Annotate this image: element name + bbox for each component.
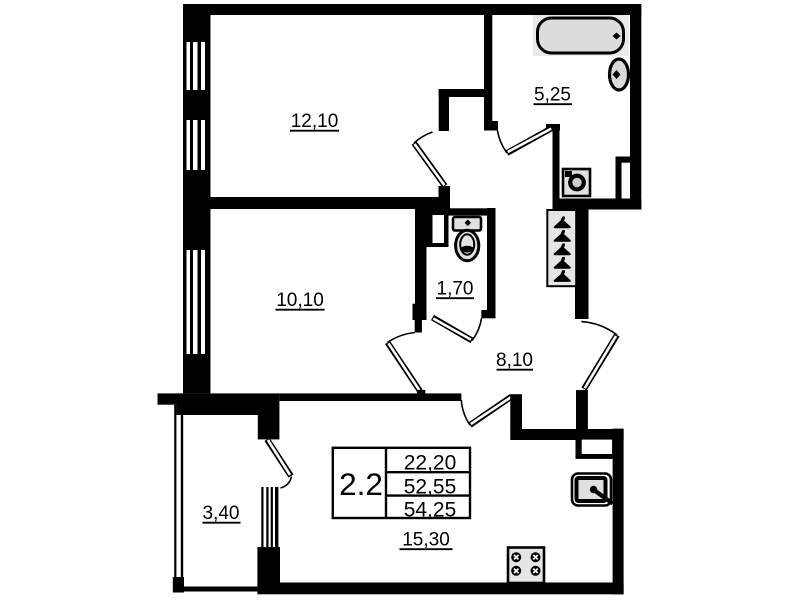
svg-text:22,20: 22,20 bbox=[404, 452, 457, 475]
svg-text:15,30: 15,30 bbox=[402, 530, 450, 551]
svg-text:54,25: 54,25 bbox=[404, 498, 457, 521]
svg-text:52,55: 52,55 bbox=[404, 475, 457, 498]
svg-text:12,10: 12,10 bbox=[291, 111, 339, 132]
svg-text:8,10: 8,10 bbox=[496, 350, 533, 371]
svg-text:3,40: 3,40 bbox=[203, 503, 240, 524]
svg-text:2.2: 2.2 bbox=[339, 466, 383, 502]
svg-text:5,25: 5,25 bbox=[534, 85, 571, 106]
svg-text:1,70: 1,70 bbox=[437, 279, 474, 300]
svg-text:10,10: 10,10 bbox=[276, 290, 324, 311]
